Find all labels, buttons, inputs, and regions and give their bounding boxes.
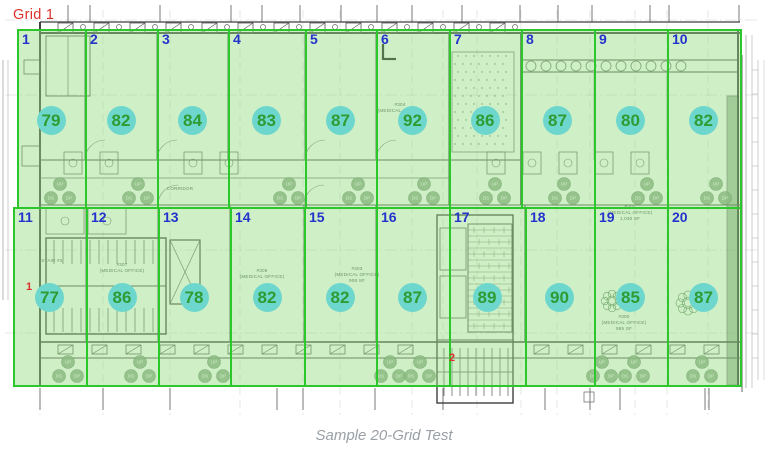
cell-number: 4 [233,31,241,47]
grid-cell-9: 980 [594,29,669,209]
grid-cell-5: 587 [305,29,378,209]
cell-number: 20 [672,209,688,225]
grid-label: Grid 1 [13,7,54,23]
grid-cell-2: 282 [85,29,159,209]
grid-cell-4: 483 [228,29,307,209]
cell-number: 17 [454,209,470,225]
cell-value-badge: 79 [37,106,66,135]
grid-cell-13: 1378 [158,207,232,387]
grid-cell-17: 1789 [449,207,527,387]
cell-number: 13 [163,209,179,225]
cell-number: 15 [309,209,325,225]
cell-number: 19 [599,209,615,225]
cell-number: 10 [672,31,688,47]
cell-number: 5 [310,31,318,47]
cell-number: 14 [235,209,251,225]
grid-cell-7: 786 [449,29,523,209]
grid-cell-12: 1286 [86,207,160,387]
grid-cell-20: 2087 [667,207,742,387]
grid-cell-11: 1177 [13,207,88,387]
grid-cell-6: 692 [376,29,451,209]
cell-value-badge: 87 [398,283,427,312]
cell-value-badge: 89 [473,283,502,312]
cell-value-badge: 82 [326,283,355,312]
cell-value-badge: 87 [689,283,718,312]
cell-value-badge: 82 [689,106,718,135]
cell-value-badge: 87 [326,106,355,135]
grid-cell-14: 1482 [230,207,306,387]
cell-value-badge: 77 [35,283,64,312]
cell-value-badge: 92 [398,106,427,135]
cell-value-badge: 80 [616,106,645,135]
cell-value-badge: 84 [178,106,207,135]
grid-cell-16: 1687 [376,207,451,387]
grid-cell-15: 1582 [304,207,378,387]
cell-number: 7 [454,31,462,47]
grid-cell-19: 1985 [594,207,669,387]
cell-value-badge: 90 [545,283,574,312]
grid-overlay: 1792823844835876927868879801082117712861… [0,0,768,455]
cell-number: 6 [381,31,389,47]
cell-number: 3 [162,31,170,47]
cell-number: 12 [91,209,107,225]
grid-cell-1: 179 [17,29,87,209]
grid-cell-18: 1890 [525,207,596,387]
cell-value-badge: 83 [252,106,281,135]
cell-number: 8 [526,31,534,47]
cell-number: 16 [381,209,397,225]
cell-value-badge: 78 [180,283,209,312]
cell-number: 18 [530,209,546,225]
cell-number: 2 [90,31,98,47]
cell-number: 1 [22,31,30,47]
cell-value-badge: 85 [616,283,645,312]
cell-value-badge: 82 [253,283,282,312]
grid-cell-8: 887 [521,29,596,209]
grid-cell-3: 384 [157,29,230,209]
cell-value-badge: 86 [108,283,137,312]
grid-cell-10: 1082 [667,29,742,209]
cell-number: 11 [18,209,33,225]
cell-value-badge: 82 [107,106,136,135]
screenshot-root: UPDSDPUPDSDPUPDSDPUPDSDPUPDSDPUPDSDPUPDS… [0,0,768,455]
cell-number: 9 [599,31,607,47]
cell-value-badge: 86 [471,106,500,135]
cell-value-badge: 87 [543,106,572,135]
